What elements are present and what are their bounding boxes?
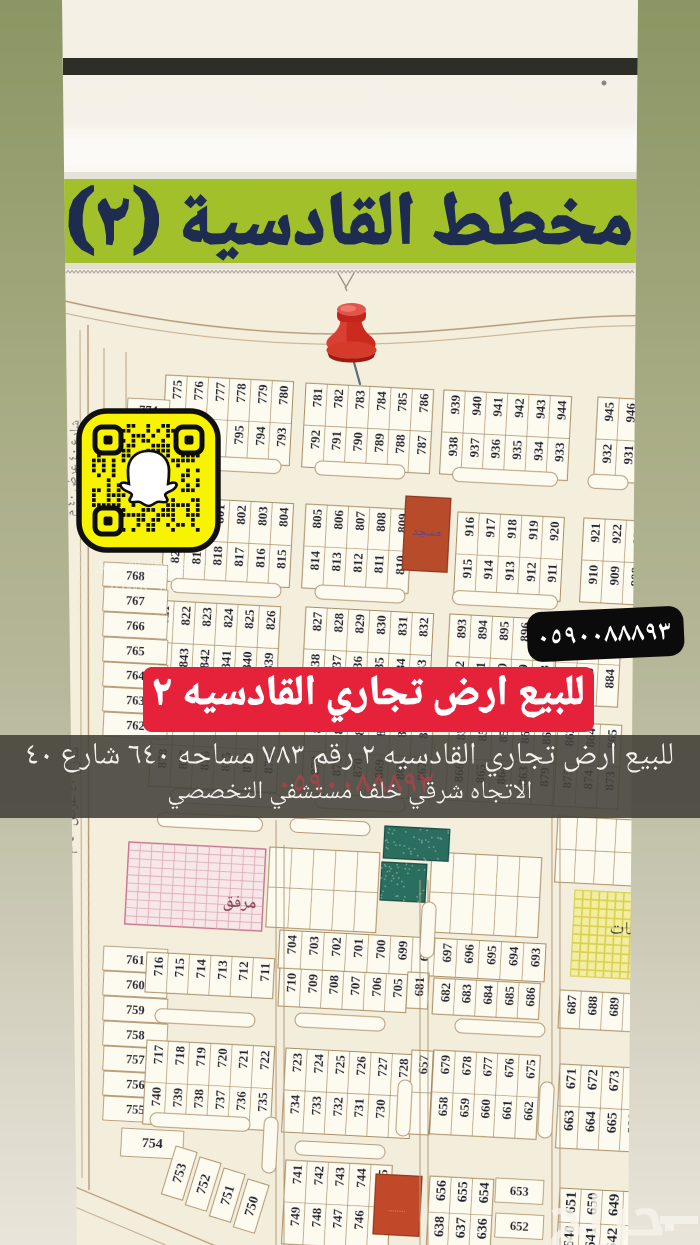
svg-text:699: 699 <box>394 940 410 961</box>
svg-text:693: 693 <box>527 947 543 968</box>
svg-text:778: 778 <box>233 382 249 403</box>
svg-text:919: 919 <box>525 519 541 540</box>
svg-text:843: 843 <box>175 647 191 668</box>
svg-text:832: 832 <box>416 617 432 637</box>
svg-text:684: 684 <box>480 984 496 1005</box>
svg-text:659: 659 <box>456 1097 472 1118</box>
svg-text:682: 682 <box>437 982 453 1002</box>
svg-text:706: 706 <box>368 976 384 997</box>
svg-text:826: 826 <box>263 610 279 631</box>
svg-text:728: 728 <box>396 1058 412 1079</box>
svg-text:817: 817 <box>231 546 247 567</box>
svg-text:660: 660 <box>478 1099 494 1119</box>
svg-text:662: 662 <box>520 1101 536 1121</box>
svg-text:767: 767 <box>126 593 145 608</box>
svg-text:700: 700 <box>372 939 388 959</box>
svg-text:918: 918 <box>504 518 520 539</box>
svg-text:679: 679 <box>437 1054 453 1075</box>
svg-text:815: 815 <box>273 548 289 569</box>
svg-text:732: 732 <box>330 1097 346 1117</box>
svg-text:726: 726 <box>353 1055 369 1076</box>
svg-text:802: 802 <box>233 505 249 525</box>
svg-text:937: 937 <box>466 437 482 458</box>
svg-text:636: 636 <box>475 1218 491 1240</box>
svg-text:825: 825 <box>241 608 257 629</box>
svg-text:783: 783 <box>352 389 368 410</box>
svg-text:909: 909 <box>606 565 622 586</box>
svg-text:793: 793 <box>273 427 289 448</box>
svg-text:738: 738 <box>191 1088 207 1109</box>
svg-text:702: 702 <box>328 937 344 957</box>
svg-text:786: 786 <box>416 393 432 414</box>
svg-text:812: 812 <box>350 553 366 573</box>
svg-text:703: 703 <box>306 935 322 956</box>
svg-text:........: ........ <box>388 1204 406 1214</box>
svg-text:672: 672 <box>585 1069 601 1091</box>
svg-text:695: 695 <box>483 944 499 965</box>
svg-text:686: 686 <box>522 986 538 1007</box>
svg-text:717: 717 <box>150 1044 166 1065</box>
svg-text:721: 721 <box>235 1049 251 1069</box>
svg-text:780: 780 <box>276 385 292 405</box>
svg-text:714: 714 <box>193 958 209 979</box>
svg-text:807: 807 <box>352 510 368 531</box>
svg-text:915: 915 <box>459 558 475 579</box>
svg-text:938: 938 <box>445 436 461 457</box>
svg-text:725: 725 <box>332 1054 348 1075</box>
svg-text:755: 755 <box>126 1102 145 1117</box>
svg-text:712: 712 <box>235 961 251 981</box>
svg-text:663: 663 <box>562 1110 578 1132</box>
svg-text:727: 727 <box>374 1056 390 1077</box>
svg-text:661: 661 <box>499 1100 515 1120</box>
svg-text:922: 922 <box>608 524 624 544</box>
svg-text:637: 637 <box>454 1217 470 1239</box>
svg-text:687: 687 <box>563 994 579 1015</box>
svg-text:894: 894 <box>474 619 490 640</box>
svg-text:945: 945 <box>601 401 617 422</box>
svg-text:808: 808 <box>373 511 389 532</box>
svg-text:920: 920 <box>546 521 562 541</box>
svg-text:747: 747 <box>330 1208 346 1229</box>
svg-text:791: 791 <box>328 431 344 451</box>
svg-text:921: 921 <box>587 522 603 542</box>
svg-text:740: 740 <box>148 1086 164 1106</box>
svg-text:913: 913 <box>501 560 517 581</box>
svg-text:910: 910 <box>585 564 601 584</box>
svg-text:782: 782 <box>330 389 346 409</box>
svg-text:697: 697 <box>439 942 455 963</box>
svg-text:935: 935 <box>509 439 525 460</box>
svg-text:931: 931 <box>620 445 636 465</box>
svg-text:789: 789 <box>371 432 387 453</box>
svg-text:804: 804 <box>276 507 292 528</box>
svg-text:911: 911 <box>544 563 560 583</box>
svg-text:790: 790 <box>350 432 366 452</box>
svg-text:939: 939 <box>447 394 463 415</box>
svg-text:718: 718 <box>171 1045 187 1066</box>
svg-text:673: 673 <box>607 1070 623 1092</box>
svg-text:795: 795 <box>231 424 247 445</box>
svg-text:731: 731 <box>351 1098 367 1118</box>
svg-text:733: 733 <box>308 1095 324 1116</box>
svg-text:916: 916 <box>461 516 477 537</box>
svg-text:917: 917 <box>482 517 498 538</box>
svg-text:756: 756 <box>126 1077 145 1092</box>
svg-text:813: 813 <box>328 551 344 572</box>
svg-text:828: 828 <box>330 612 346 633</box>
svg-text:792: 792 <box>307 429 323 449</box>
svg-text:884: 884 <box>602 668 618 689</box>
svg-text:683: 683 <box>459 983 475 1004</box>
svg-text:737: 737 <box>212 1089 228 1110</box>
svg-text:760: 760 <box>126 977 145 992</box>
svg-text:893: 893 <box>453 618 469 639</box>
svg-text:818: 818 <box>210 545 226 566</box>
svg-text:914: 914 <box>480 559 496 580</box>
svg-text:724: 724 <box>310 1053 326 1074</box>
svg-text:806: 806 <box>330 509 346 530</box>
svg-text:816: 816 <box>252 547 268 568</box>
svg-text:759: 759 <box>126 1002 145 1017</box>
svg-text:722: 722 <box>257 1050 273 1070</box>
svg-text:711: 711 <box>257 962 273 982</box>
svg-text:776: 776 <box>190 380 206 401</box>
svg-text:829: 829 <box>352 613 368 634</box>
svg-text:658: 658 <box>435 1096 451 1117</box>
svg-text:671: 671 <box>564 1068 580 1090</box>
svg-text:761: 761 <box>126 952 145 967</box>
svg-text:685: 685 <box>501 985 517 1006</box>
svg-text:736: 736 <box>233 1090 249 1111</box>
svg-text:739: 739 <box>169 1087 185 1108</box>
svg-text:822: 822 <box>177 606 193 626</box>
svg-text:933: 933 <box>551 441 567 462</box>
svg-text:814: 814 <box>307 550 323 571</box>
svg-text:707: 707 <box>347 975 363 996</box>
svg-text:942: 942 <box>511 398 527 418</box>
svg-text:665: 665 <box>605 1112 621 1134</box>
svg-text:677: 677 <box>480 1056 496 1077</box>
svg-text:941: 941 <box>490 397 506 417</box>
svg-text:768: 768 <box>126 568 145 583</box>
svg-text:694: 694 <box>505 946 521 967</box>
svg-text:943: 943 <box>532 398 548 419</box>
svg-text:824: 824 <box>220 607 236 628</box>
svg-text:777: 777 <box>212 381 228 402</box>
svg-text:688: 688 <box>584 995 600 1016</box>
svg-text:652: 652 <box>510 1219 529 1234</box>
svg-text:708: 708 <box>326 974 342 995</box>
svg-text:912: 912 <box>523 562 539 582</box>
svg-text:744: 744 <box>353 1167 369 1188</box>
svg-text:675: 675 <box>522 1058 538 1079</box>
svg-text:676: 676 <box>501 1057 517 1078</box>
svg-text:757: 757 <box>126 1052 145 1067</box>
svg-text:710: 710 <box>283 972 299 992</box>
svg-text:678: 678 <box>458 1055 474 1076</box>
svg-text:784: 784 <box>373 390 389 411</box>
svg-text:764: 764 <box>126 668 146 683</box>
svg-text:803: 803 <box>254 505 270 526</box>
svg-text:794: 794 <box>252 425 268 446</box>
svg-text:749: 749 <box>287 1206 303 1227</box>
svg-text:734: 734 <box>287 1094 303 1115</box>
svg-text:715: 715 <box>171 957 187 978</box>
svg-text:656: 656 <box>434 1180 450 1202</box>
svg-text:785: 785 <box>394 391 410 412</box>
svg-text:830: 830 <box>373 615 389 635</box>
svg-text:936: 936 <box>488 438 504 459</box>
svg-text:742: 742 <box>310 1166 326 1186</box>
svg-text:811: 811 <box>371 554 387 574</box>
svg-text:831: 831 <box>394 616 410 636</box>
svg-text:654: 654 <box>477 1182 493 1204</box>
svg-text:657: 657 <box>415 1054 431 1075</box>
svg-text:823: 823 <box>199 606 215 627</box>
svg-text:655: 655 <box>455 1181 471 1203</box>
svg-text:735: 735 <box>254 1092 270 1113</box>
svg-text:704: 704 <box>284 934 300 955</box>
svg-text:762: 762 <box>126 718 145 733</box>
svg-text:754: 754 <box>141 1136 163 1152</box>
svg-text:741: 741 <box>289 1164 305 1184</box>
svg-text:827: 827 <box>309 611 325 632</box>
svg-text:763: 763 <box>126 693 145 708</box>
svg-text:934: 934 <box>530 440 546 461</box>
svg-text:944: 944 <box>554 400 570 421</box>
svg-text:781: 781 <box>309 388 325 408</box>
svg-text:765: 765 <box>126 643 145 658</box>
svg-text:638: 638 <box>432 1216 448 1238</box>
svg-text:709: 709 <box>305 973 321 994</box>
svg-text:689: 689 <box>606 996 622 1017</box>
svg-text:895: 895 <box>496 620 512 641</box>
svg-text:730: 730 <box>372 1099 388 1119</box>
svg-text:788: 788 <box>392 433 408 454</box>
svg-text:696: 696 <box>461 943 477 964</box>
svg-text:743: 743 <box>332 1166 348 1187</box>
svg-text:701: 701 <box>350 938 366 958</box>
svg-text:787: 787 <box>413 435 429 456</box>
svg-text:775: 775 <box>169 379 185 400</box>
svg-text:779: 779 <box>254 383 270 404</box>
svg-text:681: 681 <box>411 976 427 996</box>
svg-text:932: 932 <box>599 443 615 463</box>
svg-text:758: 758 <box>126 1027 145 1042</box>
svg-text:705: 705 <box>390 978 406 999</box>
svg-text:805: 805 <box>309 508 325 529</box>
svg-text:766: 766 <box>126 618 145 633</box>
svg-text:716: 716 <box>150 956 166 977</box>
svg-text:713: 713 <box>214 959 230 980</box>
svg-text:719: 719 <box>193 1046 209 1067</box>
svg-text:723: 723 <box>289 1052 305 1073</box>
svg-text:664: 664 <box>583 1111 599 1133</box>
svg-text:746: 746 <box>351 1209 367 1230</box>
svg-text:748: 748 <box>308 1207 324 1228</box>
svg-text:653: 653 <box>510 1184 529 1199</box>
svg-text:720: 720 <box>214 1048 230 1068</box>
svg-text:940: 940 <box>468 396 484 416</box>
svg-text:842: 842 <box>197 649 213 669</box>
